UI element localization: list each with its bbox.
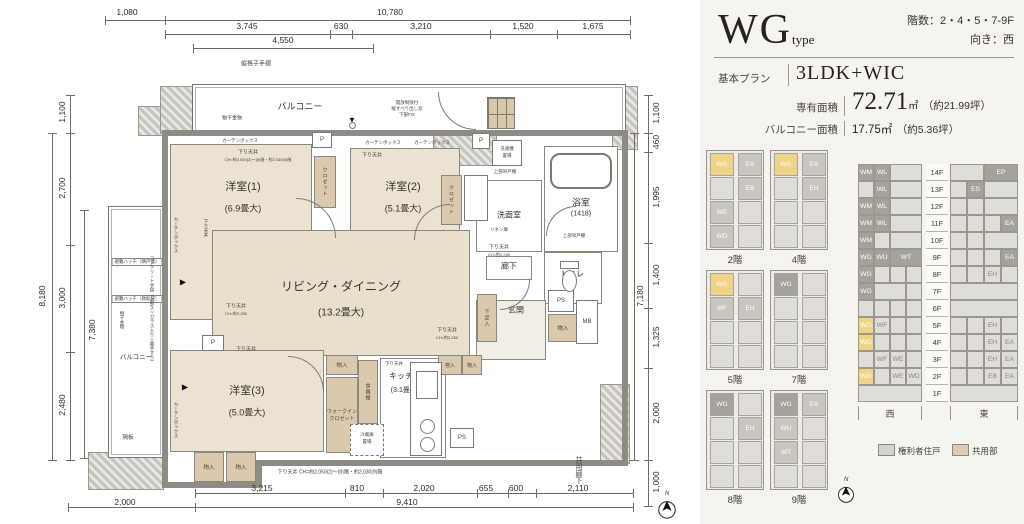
grid-unit-cell: EH (984, 351, 1001, 368)
unit-cell (710, 321, 734, 344)
dimension-line (644, 152, 653, 153)
unit-cell (738, 201, 762, 224)
annotation: 下り天井 (489, 244, 509, 251)
unit-cell (738, 393, 762, 416)
wall (162, 130, 168, 488)
grid-unit-cell (967, 351, 984, 368)
dimension-line (193, 48, 373, 49)
dimension-label: 8,180 (37, 285, 47, 306)
dimension-label: 1,080 (116, 7, 137, 17)
grid-unit-cell: WG (858, 283, 874, 300)
wall (162, 130, 628, 136)
grid-unit-cell (950, 283, 1018, 300)
room-size: (5.1畳大) (385, 202, 422, 215)
info-panel: WG type 階数：2・4・5・7-9F 向き：西 基本プラン 3LDK+WI… (700, 0, 1024, 524)
grid-unit-cell (984, 232, 1018, 249)
mini-plate-caption: 5階 (706, 372, 764, 386)
unit-cell (802, 465, 826, 488)
grid-unit-cell (906, 300, 922, 317)
unit-cell: EA (802, 393, 826, 416)
dimension-label: 1,325 (651, 326, 661, 347)
grid-unit-cell (967, 215, 984, 232)
unit-cell (710, 465, 734, 488)
grid-unit-cell (950, 368, 967, 385)
annotation: リネン庫 (490, 227, 508, 233)
grid-west-label: 西 (858, 406, 922, 420)
room-label: 洋室(1) (225, 178, 260, 194)
grid-unit-cell (874, 266, 890, 283)
grid-unit-cell (950, 249, 967, 266)
grid-unit-cell (950, 266, 967, 283)
unit-cell: WG (710, 153, 734, 176)
dimension-label: 2,000 (114, 497, 135, 507)
dimension-label: 630 (334, 21, 348, 31)
room-label: 洗面室 (497, 210, 521, 221)
unit-cell (802, 225, 826, 248)
dimension-line (330, 30, 331, 39)
grid-unit-cell (890, 266, 906, 283)
annotation: PS (557, 298, 565, 304)
unit-cell (710, 345, 734, 368)
dimension-line (80, 458, 89, 459)
annotation: 上部吊戸棚 (563, 233, 586, 239)
fixture-tub (550, 153, 612, 189)
annotation: 下り天井 (437, 327, 457, 334)
unit-cell: WT (774, 441, 798, 464)
dimension-line (105, 16, 106, 25)
grid-unit-cell (890, 164, 922, 181)
dimension-line (48, 460, 57, 461)
unit-cell: WU (774, 417, 798, 440)
legend-swatch-rights (878, 444, 895, 456)
balcony-tsubo: （約5.36坪） (897, 124, 959, 136)
storage: 物入 (548, 314, 578, 342)
grid-unit-cell (967, 198, 984, 215)
dimension-line (68, 507, 633, 508)
dimension-line (630, 460, 639, 461)
dimension-line (352, 30, 353, 39)
grid-unit-cell (874, 283, 906, 300)
unit-cell: WG (710, 273, 734, 296)
grid-east-label: 東 (950, 406, 1018, 420)
dimension-label: 9,410 (396, 497, 417, 507)
compass-icon: N (656, 492, 678, 522)
mini-plate-caption: 2階 (706, 252, 764, 266)
grid-unit-cell (967, 232, 984, 249)
grid-unit-cell (984, 198, 1018, 215)
storage: 食器棚 (358, 360, 378, 424)
dimension-line (644, 95, 653, 96)
dimension-line (84, 210, 85, 458)
dimension-label: 2,020 (413, 483, 434, 493)
unit-cell (774, 321, 798, 344)
grid-unit-cell (1001, 266, 1018, 283)
grid-unit-cell: WF (874, 351, 890, 368)
divider (844, 121, 845, 136)
grid-unit-cell: WG (858, 266, 874, 283)
grid-unit-cell (906, 334, 922, 351)
dimension-label: 655 (479, 483, 493, 493)
grid-unit-cell (906, 283, 922, 300)
grid-unit-cell: WM (858, 232, 874, 249)
annotation: コンクリート手摺（上部スリガラス入り＋腰手すり） (149, 256, 155, 364)
grid-unit-cell (906, 351, 922, 368)
grid-unit-cell: WL (874, 198, 890, 215)
annotation: 物干金物 (119, 311, 125, 329)
annotation: 置場 (503, 153, 512, 159)
unit-cell (802, 321, 826, 344)
mini-plate-caption: 8階 (706, 492, 764, 506)
grid-floor-label: 10F (926, 232, 948, 249)
dimension-line (195, 493, 633, 494)
fixture-box (464, 175, 488, 221)
grid-unit-cell: WE (890, 368, 906, 385)
dimension-label: 810 (350, 483, 364, 493)
dimension-line (630, 16, 631, 25)
grid-unit-cell (950, 198, 967, 215)
grid-unit-cell (950, 334, 967, 351)
grid-unit-cell: EH (984, 317, 1001, 334)
grid-unit-cell: WU (874, 249, 890, 266)
dimension-line (536, 489, 537, 498)
grid-unit-cell: EA (1001, 368, 1018, 385)
dimension-label: 1,520 (512, 21, 533, 31)
legend-label-common: 共用部 (972, 445, 998, 457)
grid-unit-cell: EA (1001, 249, 1018, 266)
stove-burner (420, 419, 435, 434)
dimension-line (68, 503, 69, 512)
plan-label: 基本プラン (718, 71, 771, 86)
entry-marker: ▼ (348, 116, 356, 125)
dimension-line (66, 460, 75, 461)
room-label: バルコニー (278, 100, 323, 113)
dimension-line (630, 133, 639, 134)
grid-unit-cell (890, 334, 906, 351)
unit-cell: WG (774, 153, 798, 176)
grid-unit-cell: WM (858, 164, 874, 181)
annotation: CH=約2,250 (225, 311, 247, 317)
grid-unit-cell (890, 198, 922, 215)
grid-unit-cell: WL (874, 164, 890, 181)
grid-unit-cell (858, 300, 874, 317)
annotation: P (479, 138, 483, 144)
storage: クロゼット (314, 156, 336, 208)
grid-unit-cell: WD (906, 368, 922, 385)
grid-floor-label: 8F (926, 266, 948, 283)
mini-plate-caption: 9階 (770, 492, 828, 506)
grid-unit-cell (984, 249, 1001, 266)
grid-unit-cell: WM (858, 198, 874, 215)
dimension-line (508, 489, 509, 498)
grid-floor-label: 7F (926, 283, 948, 300)
annotation: 下り天井 (236, 346, 256, 353)
dimension-label: 2,480 (57, 394, 67, 415)
grid-unit-cell (906, 266, 922, 283)
unit-cell (802, 201, 826, 224)
grid-unit-cell (890, 181, 922, 198)
storage: 物入 (326, 355, 358, 375)
grid-unit-cell (967, 334, 984, 351)
grid-floor-label: 6F (926, 300, 948, 317)
divider (844, 96, 845, 116)
legend-swatch-common (952, 444, 969, 456)
annotation: カーテンボックス (173, 217, 179, 253)
dimension-line (52, 133, 53, 460)
grid-floor-label: 4F (926, 334, 948, 351)
dimension-label: 3,215 (251, 483, 272, 493)
grid-unit-cell: WG (858, 249, 874, 266)
wall (162, 482, 262, 488)
annotation: 置場 (363, 439, 372, 445)
unit-cell: EA (802, 153, 826, 176)
grid-unit-cell: WT (890, 249, 922, 266)
dimension-line (165, 34, 630, 35)
grid-unit-cell (858, 385, 922, 402)
dimension-line (633, 503, 634, 512)
grid-unit-cell: EH (984, 266, 1001, 283)
annotation: カーテンボックス (222, 138, 258, 144)
dimension-line (477, 489, 478, 498)
grid-unit-cell: EA (1001, 351, 1018, 368)
grid-unit-cell (950, 317, 967, 334)
unit-cell (802, 417, 826, 440)
floors-line: 階数：2・4・5・7-9F (907, 12, 1014, 31)
grid-floor-label: 11F (926, 215, 948, 232)
unit-cell (738, 345, 762, 368)
mini-plate-8階: WGEH (706, 390, 764, 490)
room-label: リビング・ダイニング (281, 278, 401, 295)
fixture-meter (487, 97, 515, 129)
dimension-line (557, 30, 558, 39)
unit-cell: EH (802, 177, 826, 200)
storage: 下足入 (477, 294, 497, 342)
floor-plan: バルコニーバルコニー洋室(1)(6.9畳大)洋室(2)(5.1畳大)リビング・ダ… (0, 0, 700, 524)
grid-unit-cell (950, 232, 967, 249)
annotation: カーテンボックス (414, 140, 450, 146)
grid-unit-cell (906, 317, 922, 334)
dimension-label: 4,550 (272, 35, 293, 45)
mini-plate-9階: WGWUWTEA (770, 390, 828, 490)
unit-cell: WG (774, 273, 798, 296)
type-word: type (792, 32, 814, 48)
grid-floor-label: 13F (926, 181, 948, 198)
room-size: (13.2畳大) (318, 304, 364, 319)
dimension-line (48, 133, 57, 134)
dimension-label: 600 (509, 483, 523, 493)
unit-cell (774, 177, 798, 200)
dimension-line (644, 368, 653, 369)
annotation: MB (583, 319, 592, 325)
grid-unit-cell: WM (858, 215, 874, 232)
unit-cell: WE (710, 201, 734, 224)
grid-unit-cell (967, 317, 984, 334)
annotation: CH=約2,250 (488, 252, 510, 258)
entry-marker: ▶ (182, 383, 188, 392)
unit-cell (774, 465, 798, 488)
dimension-label: 3,000 (57, 287, 67, 308)
dimension-label: 3,210 (410, 21, 431, 31)
compass-icon: N (836, 478, 856, 506)
grid-unit-cell (984, 215, 1001, 232)
grid-unit-cell (1001, 317, 1018, 334)
grid-unit-cell (950, 181, 967, 198)
balcony-value-row: 17.75㎡ （約5.36坪） (852, 120, 959, 138)
grid-floor-label: 1F (926, 385, 948, 402)
grid-unit-cell (950, 215, 967, 232)
mini-plate-caption: 7階 (770, 372, 828, 386)
dimension-line (644, 243, 653, 244)
grid-unit-cell (858, 181, 874, 198)
dimension-line (66, 95, 75, 96)
grid-floor-label: 5F (926, 317, 948, 334)
dimension-line (648, 95, 649, 507)
dimension-line (195, 489, 196, 498)
annotation: カーテンボックス (173, 402, 179, 438)
unit-cell (710, 441, 734, 464)
annotation: カーテンボックス (365, 140, 401, 146)
unit-cell (774, 297, 798, 320)
dimension-line (80, 210, 89, 211)
unit-cell: EA (738, 153, 762, 176)
header-divider (714, 57, 1014, 58)
annotation: 下り天井 (203, 219, 209, 237)
dimension-line (193, 44, 194, 53)
grid-floor-label: 9F (926, 249, 948, 266)
dimension-label: 7,180 (635, 285, 645, 306)
dimension-line (630, 30, 631, 39)
dimension-line (644, 133, 653, 134)
grid-unit-cell (890, 232, 922, 249)
grid-unit-cell (858, 351, 874, 368)
legend-label-rights: 権利者住戸 (898, 445, 941, 457)
direction-line: 向き：西 (907, 31, 1014, 50)
unit-cell (710, 177, 734, 200)
room-size: (5.0畳大) (229, 406, 266, 419)
annotation: 下り天井 (226, 303, 246, 310)
grid-unit-cell: WG (858, 368, 874, 385)
divider (788, 64, 789, 86)
unit-cell (738, 225, 762, 248)
unit-cell: WF (710, 297, 734, 320)
fixture-counter (410, 362, 442, 456)
mini-plate-caption: 4階 (770, 252, 828, 266)
grid-unit-cell (874, 232, 890, 249)
toilet-tank (560, 261, 579, 269)
mini-plate-4階: WGEAEH (770, 150, 828, 250)
annotation: 下部FIX (399, 112, 415, 118)
unit-cell (774, 201, 798, 224)
grid-unit-cell (967, 368, 984, 385)
dimension-label: 1,100 (57, 101, 67, 122)
unit-cell (774, 225, 798, 248)
unit-cell: EH (738, 417, 762, 440)
dimension-label: 10,780 (377, 7, 403, 17)
storage: 物入 (462, 355, 482, 375)
unit-cell (802, 345, 826, 368)
dimension-line (66, 133, 75, 134)
unit-cell (774, 345, 798, 368)
grid-unit-cell: WG (858, 317, 874, 334)
annotation: 下り天井 (362, 152, 382, 159)
grid-unit-cell (950, 385, 1018, 402)
unit-cell (710, 417, 734, 440)
dimension-label: 3,745 (236, 21, 257, 31)
annotation: P (320, 137, 324, 143)
grid-unit-cell (950, 351, 967, 368)
mini-plate-5階: WGWFEH (706, 270, 764, 370)
unit-cell (738, 441, 762, 464)
annotation: 下り天井 (385, 361, 403, 367)
storage: 物入 (226, 452, 256, 482)
annotation: 下り天井 (238, 149, 258, 156)
balcony-label: バルコニー面積 (700, 122, 838, 137)
unit-cell (738, 465, 762, 488)
annotation: 物干金物 (222, 115, 242, 122)
dimension-line (373, 44, 374, 53)
storage: 物入 (194, 452, 224, 482)
fixture-toilet (562, 270, 577, 292)
unit-cell: WG (710, 393, 734, 416)
unit-cell (802, 297, 826, 320)
dimension-label: 1,000 (651, 471, 661, 492)
dimension-line (105, 20, 630, 21)
grid-unit-cell: EH (984, 334, 1001, 351)
annotation: 縦格子手摺 (241, 59, 271, 68)
grid-floor-label: 14F (926, 164, 948, 181)
grid-floor-label: 2F (926, 368, 948, 385)
grid-unit-cell (950, 300, 1018, 317)
room-label: 洋室(3) (229, 382, 264, 398)
dimension-label: 1,100 (651, 102, 661, 123)
area-tsubo: （約21.99坪） (923, 100, 991, 112)
dimension-line (644, 506, 653, 507)
annotation: P (211, 340, 215, 346)
dimension-line (165, 16, 166, 25)
type-code: WG (718, 6, 792, 54)
dimension-line (633, 489, 634, 498)
unit-cell: WD (710, 225, 734, 248)
grid-unit-cell (967, 266, 984, 283)
grid-unit-cell: WF (874, 317, 890, 334)
annotation: 隔板 (122, 433, 133, 441)
mini-plate-7階: WG (770, 270, 828, 370)
grid-unit-cell (984, 181, 1018, 198)
dimension-line (66, 245, 75, 246)
grid-unit-cell: WL (874, 181, 890, 198)
dimension-label: 7,380 (87, 319, 97, 340)
annotation: 共用廊下 (573, 456, 583, 484)
unit-cell (738, 273, 762, 296)
grid-unit-cell: EB (984, 368, 1001, 385)
dimension-line (345, 489, 346, 498)
balcony-value: 17.75㎡ (852, 124, 892, 136)
grid-unit-cell: EA (1001, 334, 1018, 351)
dimension-line (490, 30, 491, 39)
grid-unit-cell (967, 249, 984, 266)
grid-unit-cell (950, 164, 984, 181)
room (108, 206, 164, 458)
annotation: 冷蔵庫 (360, 432, 374, 438)
dimension-label: 2,000 (651, 402, 661, 423)
grid-unit-cell: WL (874, 215, 890, 232)
grid-floor-label: 12F (926, 198, 948, 215)
entry-marker: ▶ (180, 278, 186, 287)
grid-unit-cell (890, 317, 906, 334)
unit-cell (738, 321, 762, 344)
room-size: (6.9畳大) (225, 202, 262, 215)
area-label: 専有面積 (700, 100, 838, 115)
annotation: CH=約2,250 (436, 335, 458, 341)
